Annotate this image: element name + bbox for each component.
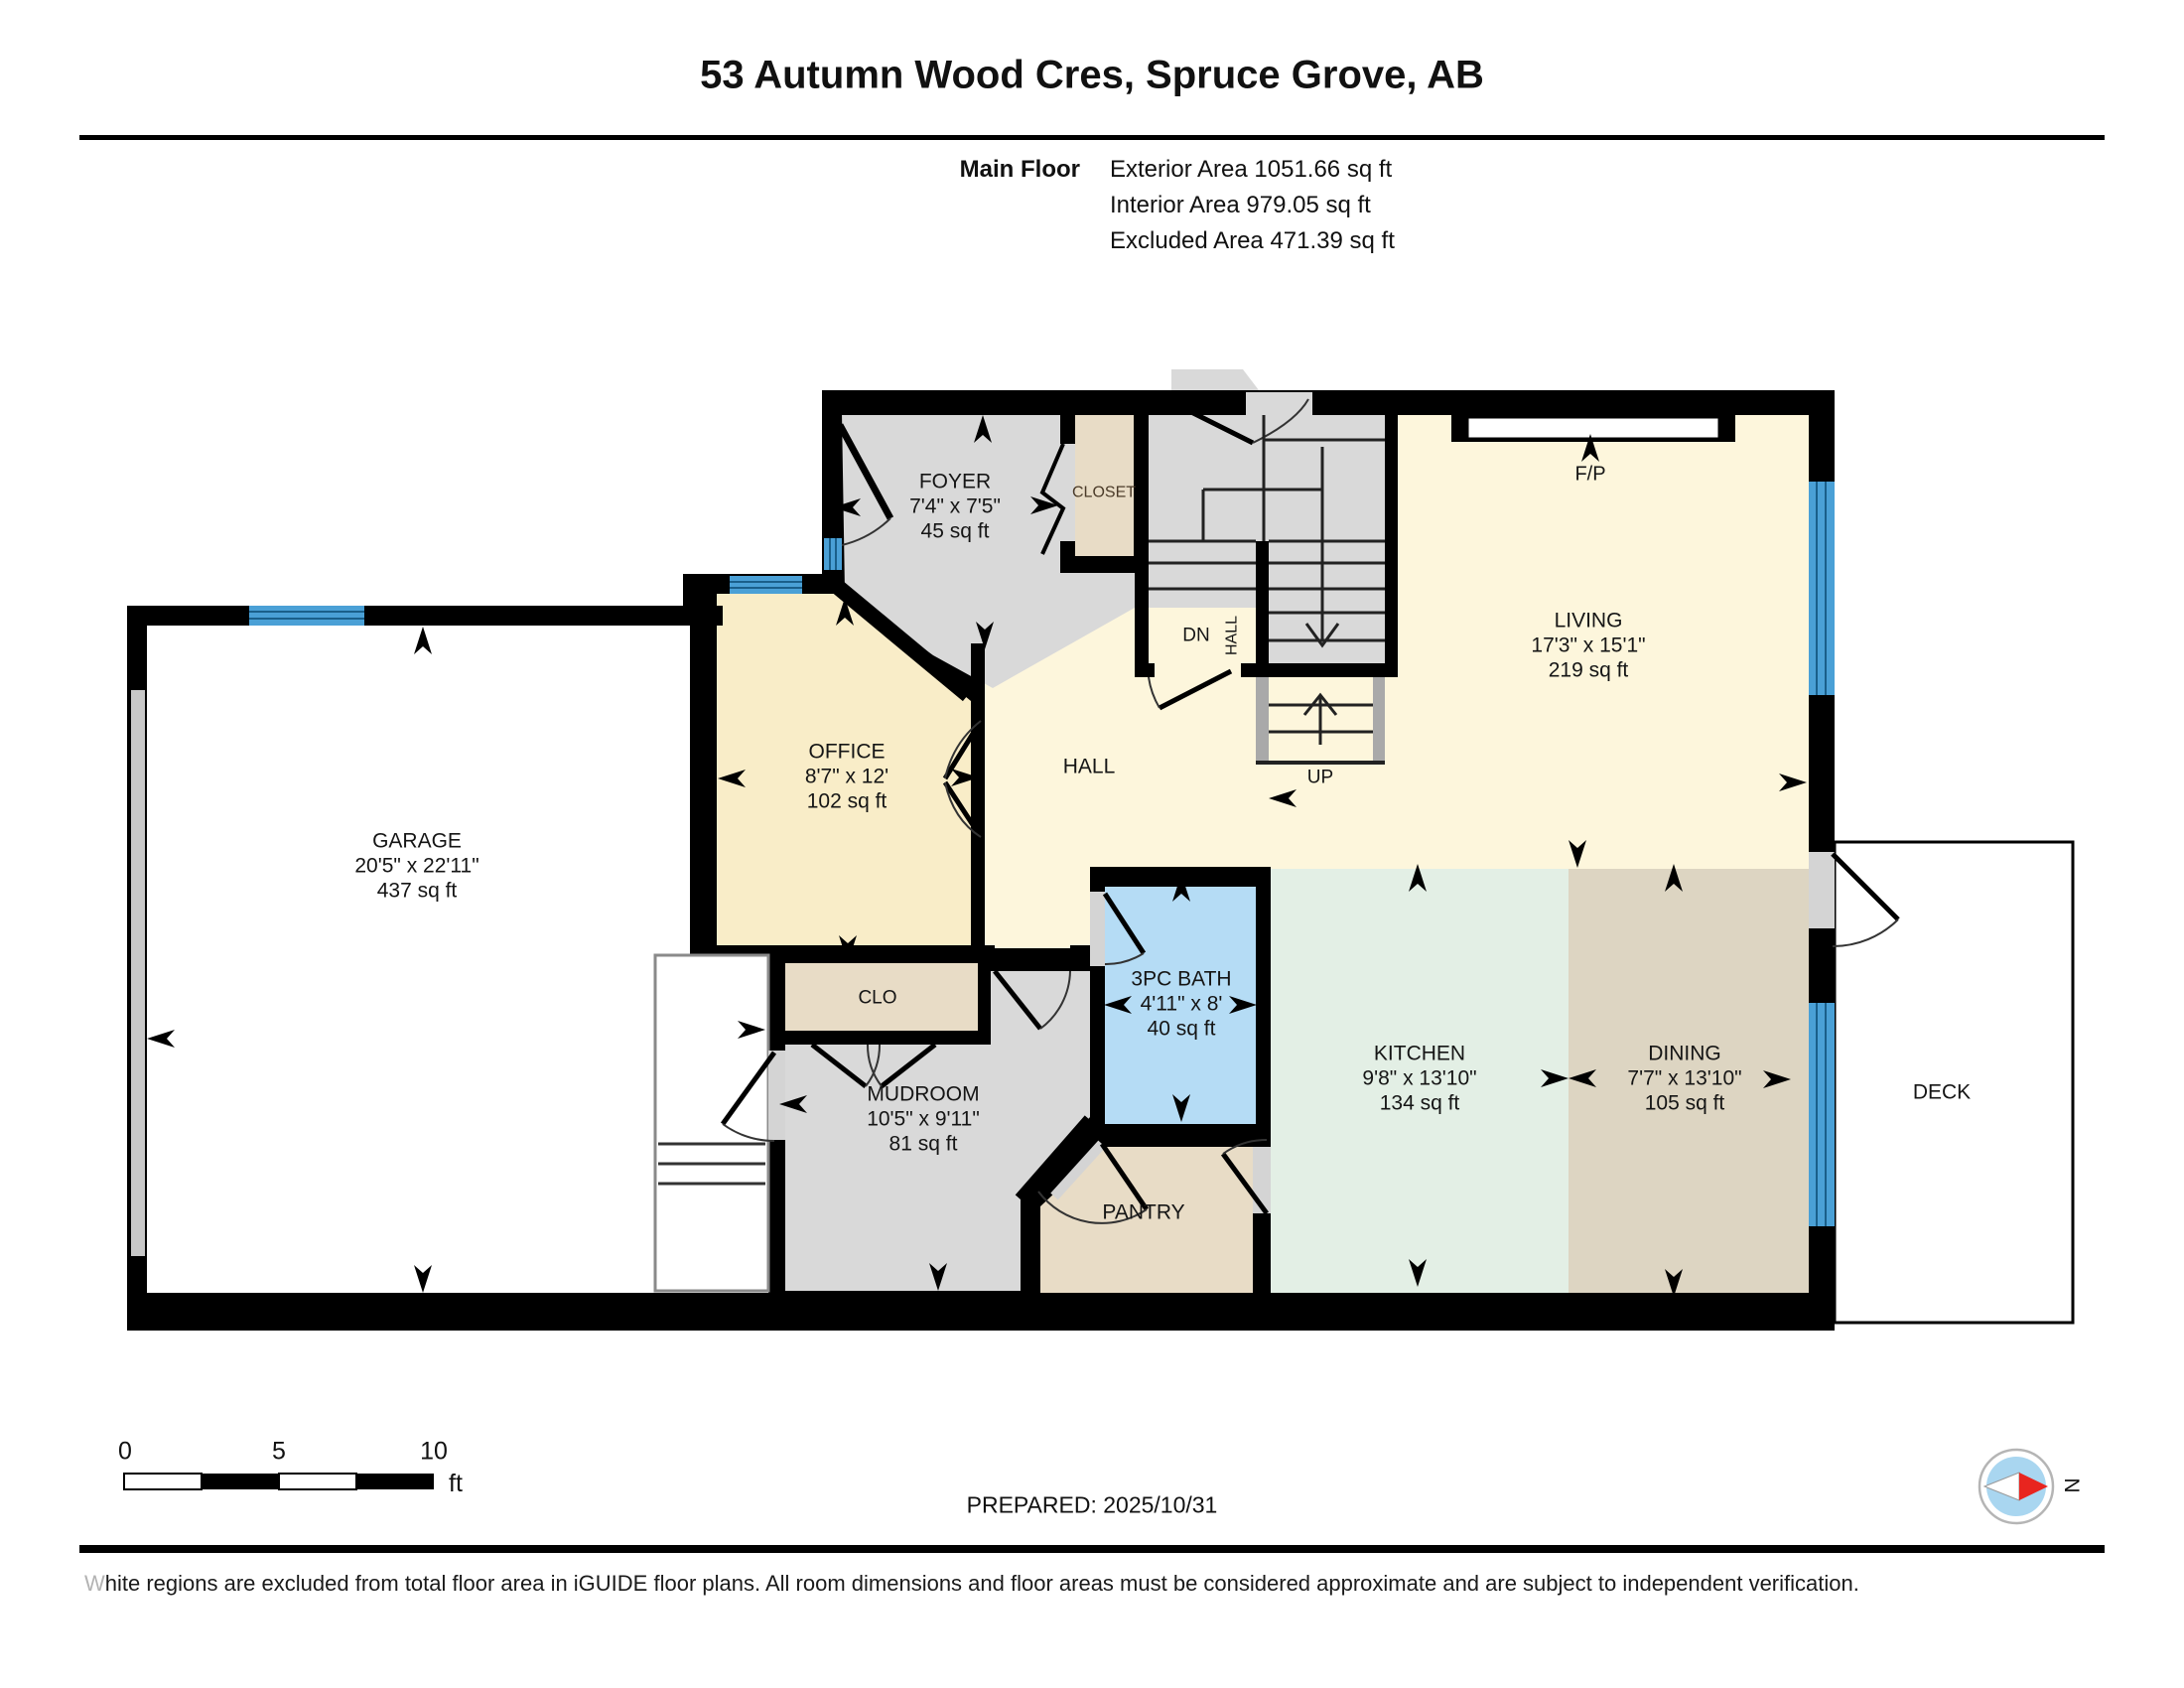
- fireplace-label: F/P: [1574, 463, 1605, 488]
- deck-label: DECK: [1913, 1080, 1971, 1105]
- foyer-label: FOYER 7'4" x 7'5" 45 sq ft: [909, 470, 1001, 544]
- stairs-hall-vertical-label: HALL: [1220, 616, 1245, 655]
- office-label: OFFICE 8'7" x 12' 102 sq ft: [805, 740, 888, 814]
- scale-bar: [124, 1474, 434, 1489]
- dining-label: DINING 7'7" x 13'10" 105 sq ft: [1627, 1042, 1741, 1116]
- prepared-date: PREPARED: 2025/10/31: [967, 1492, 1218, 1519]
- living-label: LIVING 17'3" x 15'1" 219 sq ft: [1531, 609, 1645, 683]
- disclaimer-lead: W: [84, 1571, 105, 1596]
- scale-tick-0: 0: [118, 1440, 132, 1465]
- disclaimer: White regions are excluded from total fl…: [84, 1571, 1859, 1597]
- pantry-label: PANTRY: [1102, 1200, 1184, 1225]
- hall-label: HALL: [1063, 755, 1116, 779]
- stairs-dn-label: DN: [1182, 624, 1209, 648]
- disclaimer-text: hite regions are excluded from total flo…: [105, 1571, 1859, 1596]
- closet-label: CLOSET: [1072, 481, 1136, 505]
- scale-unit: ft: [449, 1472, 463, 1496]
- footer-divider: [79, 1545, 2105, 1553]
- fireplace-icon: [1467, 417, 1719, 439]
- scale-tick-10: 10: [420, 1440, 448, 1465]
- scale-tick-5: 5: [272, 1440, 286, 1465]
- garage-door-icon: [131, 690, 145, 1256]
- compass-north-label: N: [2059, 1477, 2083, 1492]
- garage-landing-steps: [655, 955, 768, 1291]
- mudroom-label: MUDROOM 10'5" x 9'11" 81 sq ft: [867, 1082, 980, 1157]
- clo-label: CLO: [858, 986, 896, 1011]
- floor-plan-page: 53 Autumn Wood Cres, Spruce Grove, AB Ma…: [0, 0, 2184, 1688]
- garage-label: GARAGE 20'5" x 22'11" 437 sq ft: [354, 829, 478, 904]
- kitchen-label: KITCHEN 9'8" x 13'10" 134 sq ft: [1362, 1042, 1476, 1116]
- stairs-up-label: UP: [1307, 766, 1333, 790]
- bath-label: 3PC BATH 4'11" x 8' 40 sq ft: [1131, 967, 1231, 1042]
- floor-plan-svg: [0, 0, 2184, 1688]
- compass-icon: [1979, 1450, 2053, 1523]
